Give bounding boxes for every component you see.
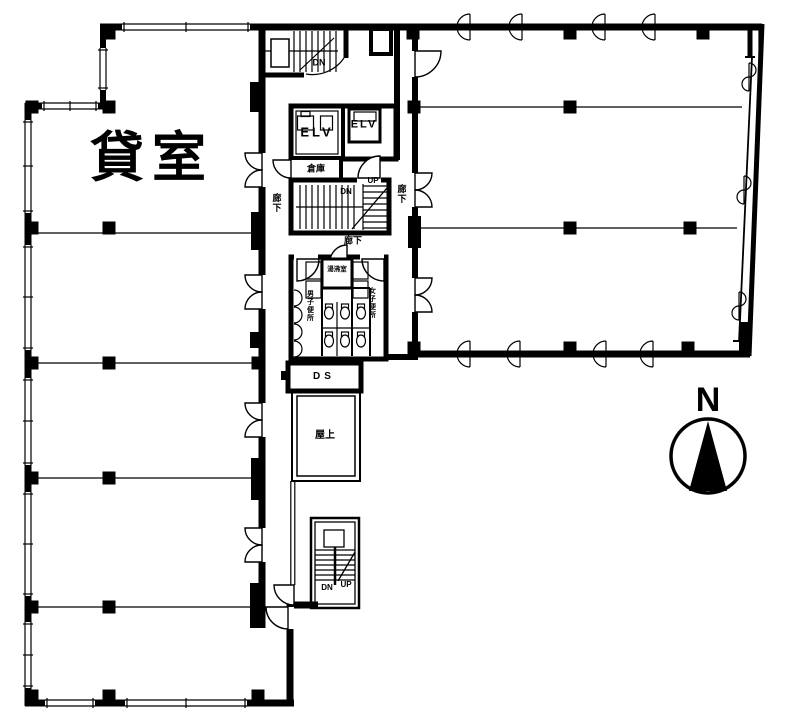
right-wing-walls — [386, 24, 762, 357]
label-rooftop: 屋上 — [315, 431, 335, 441]
label-mens-toilet: 男子便所 — [307, 290, 314, 322]
label-elevator-right: ELV — [351, 120, 378, 131]
label-kitchenette: 湯沸室 — [327, 267, 347, 274]
label-rental-room: 貸室 — [90, 131, 214, 185]
label-elevator-left: ELV — [300, 126, 333, 139]
floor-plan: 貸室 DN ELV ELV 倉庫 廊下 UP DN 廊下 廊下 湯沸室 男子便所… — [0, 0, 787, 720]
label-storage: 倉庫 — [307, 165, 325, 174]
north-arrow — [671, 419, 745, 493]
label-top-stair-dn: DN — [313, 59, 326, 68]
label-mid-stair-up: UP — [367, 177, 378, 185]
label-womens-toilet: 女子便所 — [369, 287, 376, 319]
label-corridor-center: 廊下 — [344, 237, 362, 246]
window-arcs — [457, 14, 756, 367]
label-corridor-west: 廊下 — [272, 193, 281, 213]
floor-plan-drawing — [0, 0, 787, 720]
kitchenette-room — [322, 259, 352, 288]
label-bottom-stair-up: UP — [340, 581, 351, 589]
rooftop-area — [291, 391, 360, 585]
shaft-box — [371, 29, 391, 54]
label-corridor-east: 廊下 — [397, 184, 406, 204]
window-segments — [23, 22, 250, 708]
bottom-stairwell — [274, 518, 359, 608]
label-duct-shaft: DS — [313, 372, 335, 382]
label-bottom-stair-dn: DN — [321, 584, 333, 592]
label-mid-stair-dn: DN — [340, 188, 352, 196]
label-compass-north: N — [696, 383, 721, 417]
